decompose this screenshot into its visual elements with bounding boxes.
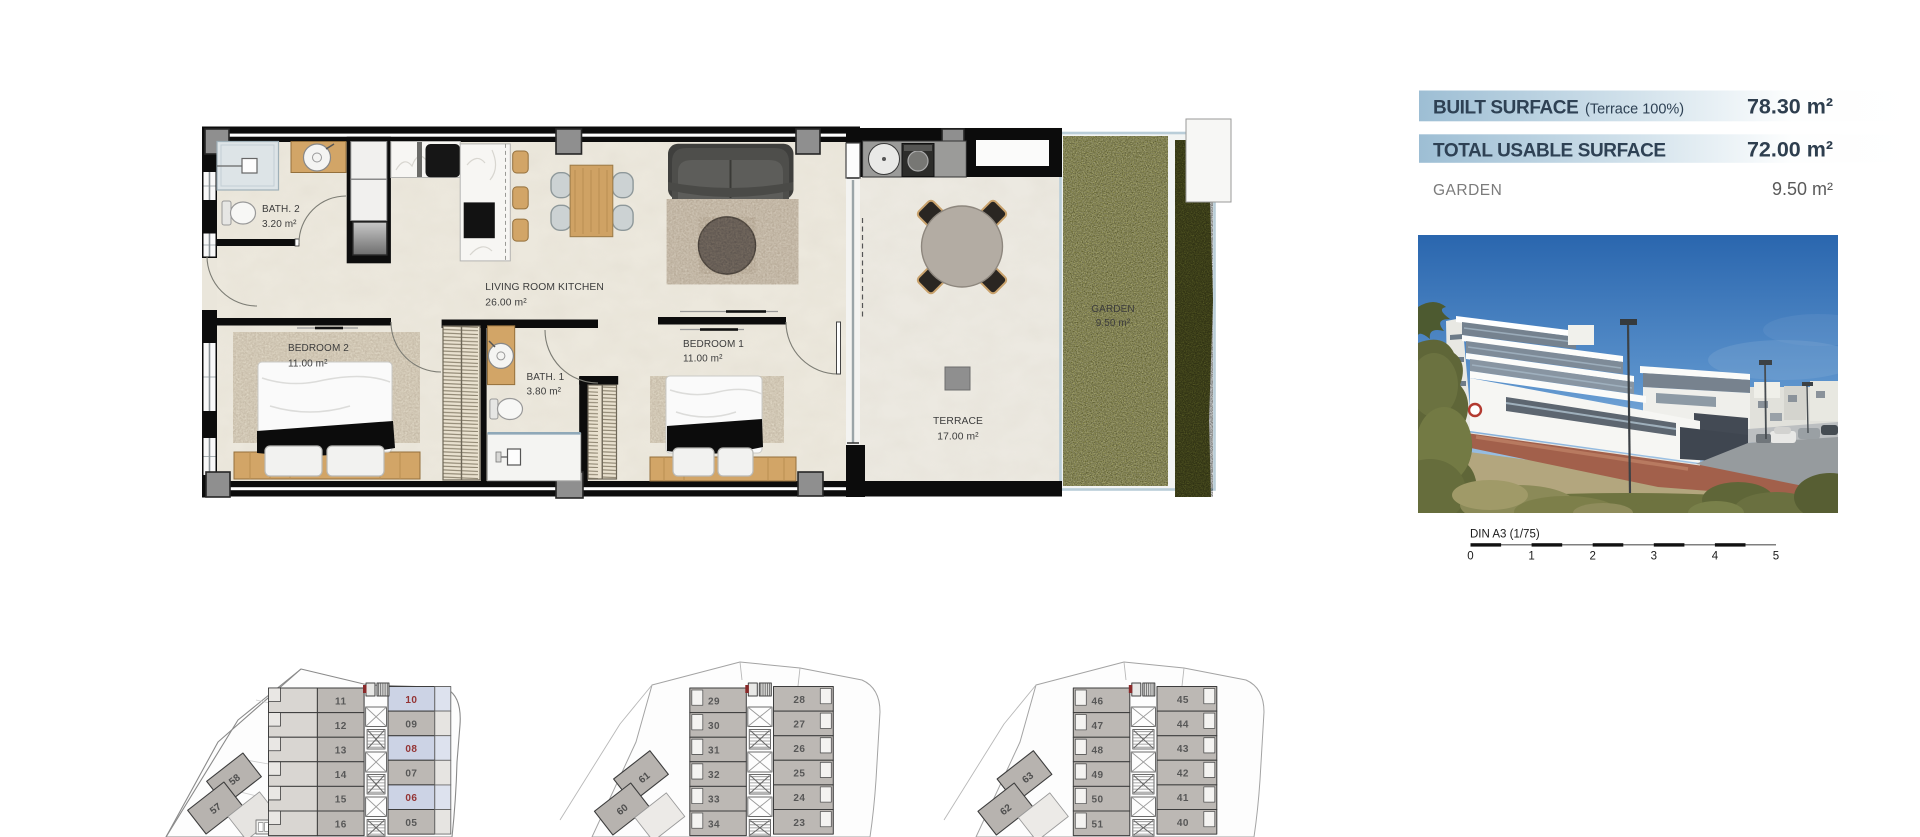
svg-text:BEDROOM 1: BEDROOM 1 (683, 339, 744, 350)
svg-text:BATH. 2: BATH. 2 (262, 204, 300, 215)
svg-text:TOTAL USABLE SURFACE: TOTAL USABLE SURFACE (1433, 141, 1666, 162)
svg-text:LIVING ROOM KITCHEN: LIVING ROOM KITCHEN (485, 282, 604, 293)
svg-text:3.20 m²: 3.20 m² (262, 219, 297, 230)
svg-text:17.00 m²: 17.00 m² (937, 432, 979, 443)
svg-text:1: 1 (1528, 551, 1534, 563)
svg-text:42: 42 (1177, 769, 1189, 780)
svg-text:43: 43 (1177, 744, 1189, 755)
svg-text:09: 09 (405, 719, 417, 730)
svg-text:16: 16 (335, 819, 347, 830)
svg-text:50: 50 (1091, 795, 1103, 806)
svg-text:BUILT SURFACE: BUILT SURFACE (1433, 98, 1578, 119)
svg-text:34: 34 (708, 819, 720, 830)
svg-text:40: 40 (1177, 818, 1189, 829)
svg-text:5: 5 (1773, 551, 1779, 563)
svg-text:28: 28 (793, 695, 805, 706)
svg-text:07: 07 (405, 769, 417, 780)
svg-text:46: 46 (1091, 696, 1103, 707)
svg-text:3.80 m²: 3.80 m² (527, 387, 562, 398)
svg-text:11.00 m²: 11.00 m² (683, 354, 723, 365)
svg-text:14: 14 (335, 770, 347, 781)
svg-text:11.00 m²: 11.00 m² (288, 359, 328, 370)
svg-text:25: 25 (793, 769, 805, 780)
svg-text:23: 23 (793, 818, 805, 829)
svg-text:29: 29 (708, 696, 720, 707)
svg-text:TERRACE: TERRACE (933, 416, 983, 427)
svg-text:DIN A3 (1/75): DIN A3 (1/75) (1470, 529, 1540, 541)
svg-text:BEDROOM 2: BEDROOM 2 (288, 343, 349, 354)
svg-text:48: 48 (1091, 746, 1103, 757)
svg-text:08: 08 (405, 744, 417, 755)
svg-text:06: 06 (405, 793, 417, 804)
svg-text:78.30 m²: 78.30 m² (1747, 95, 1833, 119)
svg-text:BATH. 1: BATH. 1 (527, 372, 565, 383)
svg-text:GARDEN: GARDEN (1433, 182, 1502, 199)
svg-text:05: 05 (405, 818, 417, 829)
svg-text:9.50 m²: 9.50 m² (1772, 179, 1833, 199)
svg-text:0: 0 (1467, 551, 1473, 563)
svg-text:32: 32 (708, 770, 720, 781)
svg-text:24: 24 (793, 793, 805, 804)
svg-text:9.50 m²: 9.50 m² (1096, 318, 1131, 329)
svg-text:11: 11 (335, 696, 347, 707)
svg-text:49: 49 (1091, 770, 1103, 781)
svg-text:30: 30 (708, 721, 720, 732)
svg-text:10: 10 (405, 695, 417, 706)
svg-text:44: 44 (1177, 719, 1189, 730)
svg-text:33: 33 (708, 795, 720, 806)
svg-text:72.00 m²: 72.00 m² (1747, 138, 1833, 162)
svg-text:51: 51 (1091, 819, 1103, 830)
svg-text:26.00 m²: 26.00 m² (485, 298, 527, 309)
svg-text:3: 3 (1651, 551, 1657, 563)
svg-text:47: 47 (1091, 721, 1103, 732)
svg-text:15: 15 (335, 795, 347, 806)
svg-text:41: 41 (1177, 793, 1189, 804)
svg-text:13: 13 (335, 746, 347, 757)
svg-text:4: 4 (1712, 551, 1719, 563)
svg-text:2: 2 (1589, 551, 1595, 563)
svg-text:26: 26 (793, 744, 805, 755)
svg-text:12: 12 (335, 721, 347, 732)
svg-text:27: 27 (793, 719, 805, 730)
svg-text:31: 31 (708, 746, 720, 757)
svg-text:(Terrace 100%): (Terrace 100%) (1585, 102, 1684, 118)
svg-text:45: 45 (1177, 695, 1189, 706)
svg-text:GARDEN: GARDEN (1091, 304, 1134, 315)
